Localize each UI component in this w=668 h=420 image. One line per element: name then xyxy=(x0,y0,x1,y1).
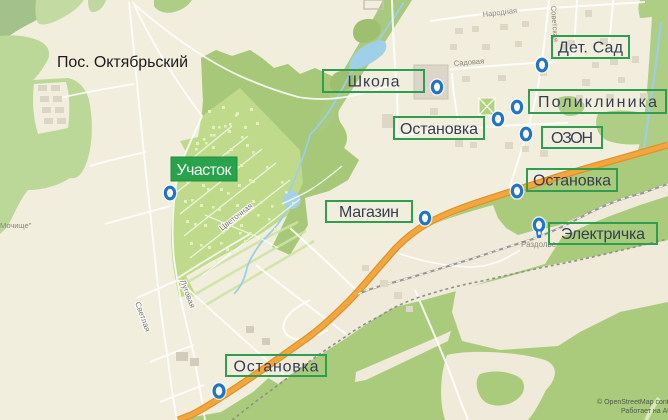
svg-text:Остановка: Остановка xyxy=(234,358,319,375)
svg-text:Остановка: Остановка xyxy=(533,173,611,190)
svg-text:ОЗОН: ОЗОН xyxy=(551,130,593,147)
svg-text:Работает на API: Работает на API xyxy=(621,407,668,415)
svg-text:Поликлиника: Поликлиника xyxy=(538,94,657,111)
svg-text:Школа: Школа xyxy=(348,73,400,90)
svg-text:Остановка: Остановка xyxy=(400,121,478,138)
svg-text:Участок: Участок xyxy=(177,162,233,179)
svg-text:Мочище": Мочище" xyxy=(0,221,32,230)
svg-text:Электричка: Электричка xyxy=(561,226,645,243)
svg-text:© OpenStreetMap contrib: © OpenStreetMap contrib xyxy=(597,398,668,406)
svg-text:Пос. Октябрьский: Пос. Октябрьский xyxy=(57,54,188,71)
svg-text:Магазин: Магазин xyxy=(339,204,399,221)
svg-text:Дет. Сад: Дет. Сад xyxy=(558,40,624,57)
